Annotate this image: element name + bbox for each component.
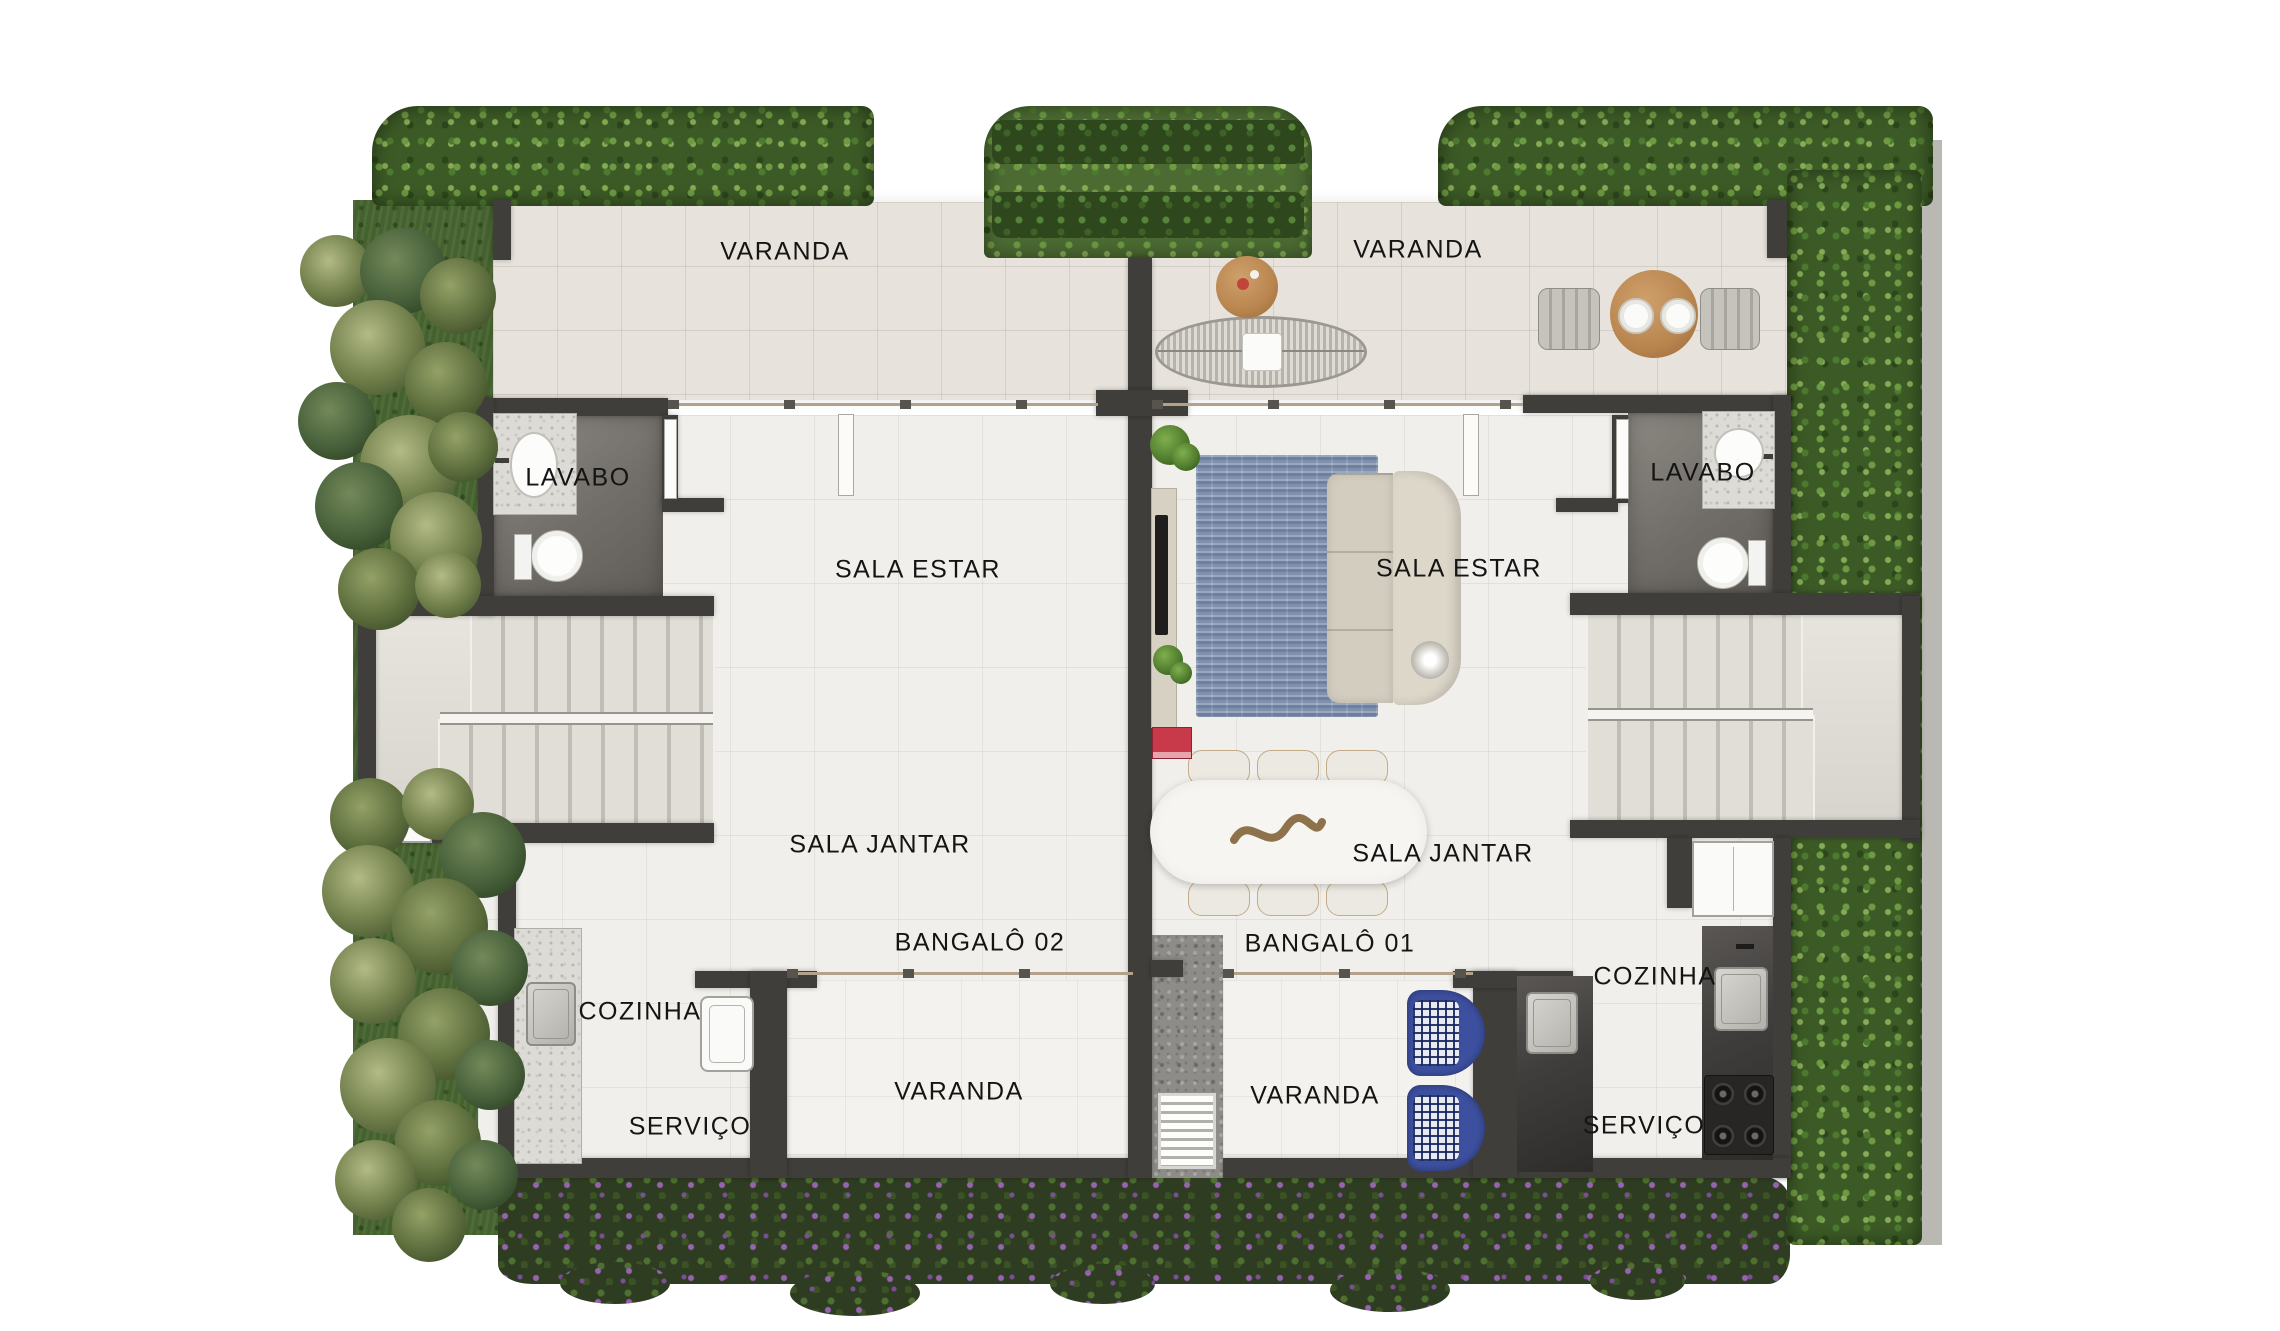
palm-frond xyxy=(338,548,420,630)
wall-fridge-side-b1 xyxy=(1667,838,1692,908)
stair-flight-lower xyxy=(1588,717,1813,820)
flower-bed-clump xyxy=(790,1270,920,1316)
wall-stairs-right-b1 xyxy=(1902,596,1920,841)
flower-bed-clump xyxy=(560,1262,670,1304)
sink-basin xyxy=(1721,974,1761,1024)
faucet-icon xyxy=(1736,944,1754,949)
stair-landing xyxy=(1803,615,1902,820)
fridge-door-line xyxy=(1733,847,1734,911)
flower-bed-clump xyxy=(1330,1268,1450,1312)
laundry-tub-b1 xyxy=(1526,992,1578,1054)
tub-basin xyxy=(709,1005,745,1063)
palm-frond xyxy=(405,342,487,424)
dining-chair xyxy=(1188,880,1250,916)
room-label-sala-estar-b1: SALA ESTAR xyxy=(1376,555,1542,584)
hedge-top-left xyxy=(372,106,874,206)
hedge-row xyxy=(992,192,1304,238)
room-label-cozinha-b1: COZINHA xyxy=(1594,963,1717,992)
room-label-sala-jantar-b1: SALA JANTAR xyxy=(1352,840,1533,869)
tv xyxy=(1155,515,1168,635)
cup-white xyxy=(1250,270,1259,279)
palm-frond xyxy=(420,258,496,334)
stair-flight-upper xyxy=(472,616,713,714)
wall-stairs-bottom-b1 xyxy=(1570,820,1920,838)
faucet-icon xyxy=(495,458,509,463)
burner xyxy=(1743,1124,1767,1148)
toilet-tank-b1 xyxy=(1748,540,1766,586)
sliding-door-bottom-b1 xyxy=(1223,969,1473,978)
toilet-b2 xyxy=(531,530,583,582)
cup-red xyxy=(1237,278,1249,290)
armchair-seat xyxy=(1413,1000,1459,1066)
stair-handrail xyxy=(440,712,713,725)
palm-frond xyxy=(392,1188,466,1262)
room-label-cozinha-b2: COZINHA xyxy=(579,998,702,1027)
door-leaf-lavabo-b2 xyxy=(664,419,677,499)
stove xyxy=(1704,1075,1774,1155)
stair-flight-lower xyxy=(440,721,713,823)
drain-grate xyxy=(1158,1093,1216,1169)
wall-central-stub-bottom xyxy=(1151,960,1183,977)
unit-name-b2: BANGALÔ 02 xyxy=(895,929,1066,958)
outdoor-chair-left xyxy=(1538,288,1600,350)
wall-stairs-top-b1 xyxy=(1570,593,1920,615)
floor-lamp xyxy=(1411,641,1449,679)
kitchen-sink-b2 xyxy=(526,982,576,1046)
floor-plan: VARANDA LAVABO SALA ESTAR SALA JANTAR BA… xyxy=(0,0,2280,1331)
burner xyxy=(1711,1082,1735,1106)
toilet-b1 xyxy=(1697,537,1749,589)
room-label-lavabo-b1: LAVABO xyxy=(1650,459,1755,488)
flower-bed-clump xyxy=(1050,1264,1155,1304)
flower-bed-clump xyxy=(1590,1262,1685,1300)
hammock-pillow xyxy=(1242,333,1282,371)
sink-basin xyxy=(533,989,569,1039)
wall-stub-top-left xyxy=(493,200,511,260)
palm-frond xyxy=(415,552,481,618)
room-label-varanda-top-b2: VARANDA xyxy=(720,238,850,267)
armchair-seat xyxy=(1413,1095,1459,1161)
wall-varanda-side-b2 xyxy=(750,971,787,1178)
wall-ext-right-upper xyxy=(1773,395,1791,613)
wall-lavabo-stub-b2 xyxy=(662,498,724,512)
sliding-door-top-b1 xyxy=(1152,400,1523,409)
room-label-varanda-bottom-b1: VARANDA xyxy=(1250,1082,1380,1111)
flower-bed-bottom xyxy=(498,1176,1790,1284)
room-label-sala-jantar-b2: SALA JANTAR xyxy=(789,831,970,860)
room-label-servico-b2: SERVIÇO xyxy=(629,1113,752,1142)
laundry-tub-b2 xyxy=(700,996,754,1072)
wall-bottom-b2 xyxy=(498,1158,1135,1178)
room-label-sala-estar-b2: SALA ESTAR xyxy=(835,556,1001,585)
palm-frond xyxy=(448,1140,518,1210)
burner xyxy=(1743,1082,1767,1106)
unit-name-b1: BANGALÔ 01 xyxy=(1245,930,1416,959)
floor-varanda-bottom-b2 xyxy=(787,980,1133,1160)
tub-basin xyxy=(1533,999,1571,1047)
palm-frond xyxy=(428,412,498,482)
stair-flight-upper xyxy=(1588,615,1803,710)
door-leaf-entry-b2 xyxy=(838,414,854,496)
room-label-servico-b1: SERVIÇO xyxy=(1583,1112,1706,1141)
stair-handrail xyxy=(1588,708,1813,721)
palm-frond xyxy=(455,1040,525,1110)
wall-lavabo-stub-b1 xyxy=(1556,498,1618,512)
burner xyxy=(1711,1124,1735,1148)
hammock xyxy=(1155,316,1367,388)
plant xyxy=(1172,443,1200,471)
wall-stub-top-right xyxy=(1767,200,1787,258)
kitchen-sink-b1 xyxy=(1714,967,1768,1031)
fridge xyxy=(1692,841,1774,917)
hedge-row xyxy=(992,120,1304,164)
door-leaf-entry-b1 xyxy=(1463,414,1479,496)
plate xyxy=(1660,298,1696,334)
table-centerpiece xyxy=(1228,806,1328,858)
room-label-lavabo-b2: LAVABO xyxy=(525,464,630,493)
plant xyxy=(1170,662,1192,684)
wall-ext-right-lower xyxy=(1773,838,1791,1178)
sliding-door-bottom-b2 xyxy=(787,969,1133,978)
room-label-varanda-top-b1: VARANDA xyxy=(1353,236,1483,265)
door-leaf-lavabo-b1 xyxy=(1616,419,1629,499)
room-label-varanda-bottom-b2: VARANDA xyxy=(894,1078,1024,1107)
plate xyxy=(1618,298,1654,334)
sofa-seat xyxy=(1327,473,1393,703)
outdoor-chair-right xyxy=(1700,288,1760,350)
toilet-tank-b2 xyxy=(514,534,532,580)
dining-chair xyxy=(1326,880,1388,916)
books xyxy=(1152,727,1192,759)
hedge-top-center xyxy=(984,106,1312,258)
sliding-door-top-b2 xyxy=(668,400,1098,409)
dining-chair xyxy=(1257,880,1319,916)
